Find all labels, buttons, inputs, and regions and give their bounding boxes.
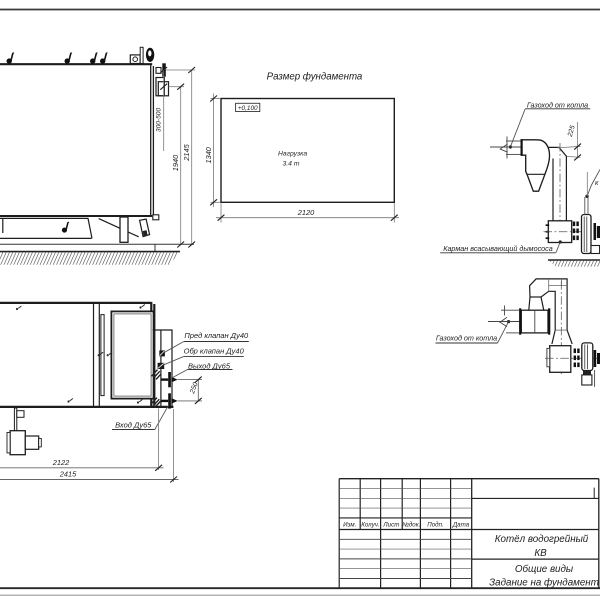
svg-text:Размер фундамента: Размер фундамента — [267, 72, 363, 83]
svg-text:Задание на фундамент: Задание на фундамент — [489, 578, 599, 589]
svg-text:Газоход от котла: Газоход от котла — [527, 100, 588, 109]
svg-text:+0,100: +0,100 — [238, 105, 258, 112]
svg-text:2120: 2120 — [297, 208, 315, 217]
svg-text:1340: 1340 — [204, 146, 213, 163]
svg-text:Общие виды: Общие виды — [515, 564, 574, 575]
svg-text:300-500: 300-500 — [155, 108, 162, 133]
svg-text:Дата: Дата — [452, 521, 470, 528]
svg-text:2145: 2145 — [182, 143, 191, 161]
svg-text:Выход Ду65: Выход Ду65 — [188, 361, 231, 370]
svg-text:3.4 т: 3.4 т — [283, 161, 300, 168]
svg-text:2122: 2122 — [52, 458, 69, 467]
svg-text:№док.: №док. — [402, 521, 420, 528]
svg-text:1940: 1940 — [171, 154, 180, 171]
svg-text:2415: 2415 — [59, 470, 77, 479]
svg-text:Газоход от котла: Газоход от котла — [436, 333, 497, 342]
svg-text:Нагрузка: Нагрузка — [278, 150, 307, 157]
svg-text:Котёл водогрейный: Котёл водогрейный — [495, 534, 589, 545]
svg-text:Вход Ду65: Вход Ду65 — [115, 421, 152, 430]
svg-text:Подп.: Подп. — [427, 521, 443, 528]
svg-text:Лист: Лист — [382, 521, 399, 528]
svg-text:Колуч.: Колуч. — [361, 521, 379, 528]
svg-text:Пред клапан Ду40: Пред клапан Ду40 — [184, 331, 249, 340]
svg-text:КВ: КВ — [534, 548, 547, 559]
svg-text:Карман всасывающий дымососа: Карман всасывающий дымососа — [443, 244, 553, 253]
svg-text:Обр клапан Ду40: Обр клапан Ду40 — [184, 346, 245, 355]
svg-text:Изм.: Изм. — [343, 521, 356, 528]
